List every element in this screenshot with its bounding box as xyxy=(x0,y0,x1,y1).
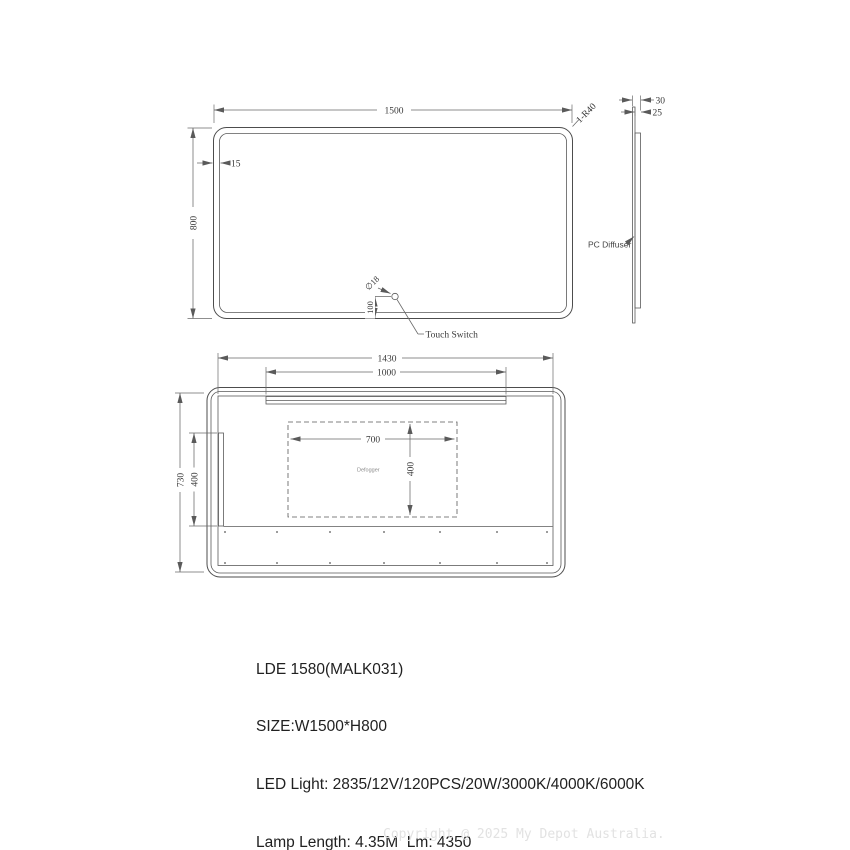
pc-diffuser-label: PC Diffuser xyxy=(588,240,631,250)
dim-glass-depth-label: 25 xyxy=(653,109,663,119)
fixing-dots xyxy=(224,531,548,564)
dim-depth: 30 xyxy=(619,97,665,107)
dim-back-height-label: 730 xyxy=(177,473,187,488)
dim-led-strip: 1000 xyxy=(266,367,506,395)
front-view: 1500 800 15 1-R40 xyxy=(187,102,599,341)
touch-switch-callout: Touch Switch ∅18 100 xyxy=(363,274,478,341)
dot xyxy=(496,531,498,533)
heating-film-label: Defogger xyxy=(357,468,380,474)
dim-side-strip: 400 xyxy=(189,433,218,526)
dot xyxy=(329,562,331,564)
dim-film-width-label: 700 xyxy=(366,436,381,446)
dim-film-height-label: 400 xyxy=(407,462,417,477)
dot xyxy=(496,562,498,564)
dim-corner-radius: 1-R40 xyxy=(573,102,599,127)
back-panel xyxy=(218,396,553,566)
dot xyxy=(329,531,331,533)
dot xyxy=(224,531,226,533)
dim-front-height: 800 xyxy=(187,128,212,319)
touch-switch-label: Touch Switch xyxy=(426,331,479,341)
spec-led: LED Light: 2835/12V/120PCS/20W/3000K/400… xyxy=(256,775,645,794)
dim-side-strip-label: 400 xyxy=(191,472,201,487)
copyright-watermark: Copyright @ 2025 My Depot Australia. Thi… xyxy=(383,797,837,850)
dim-frame-thickness: 15 xyxy=(197,160,241,170)
touch-switch-mark xyxy=(392,293,398,299)
dim-front-width: 1500 xyxy=(214,104,572,123)
dot xyxy=(546,531,548,533)
dim-front-height-label: 800 xyxy=(190,216,200,231)
back-outer-frame xyxy=(207,388,565,578)
leader-line xyxy=(378,288,391,294)
dim-frame-thickness-label: 15 xyxy=(231,160,241,170)
dim-film-width: 700 xyxy=(291,434,455,446)
back-mid-frame xyxy=(211,392,561,574)
dim-depth-label: 30 xyxy=(656,97,666,107)
drawing-page: 1500 800 15 1-R40 xyxy=(0,0,850,850)
dim-glass-depth: 25 xyxy=(621,109,662,119)
mirror-outer-frame xyxy=(214,128,573,319)
switch-diameter-label: ∅18 xyxy=(363,274,381,292)
dot xyxy=(276,562,278,564)
spec-size: SIZE:W1500*H800 xyxy=(256,717,645,736)
switch-offset-label: 100 xyxy=(365,301,375,314)
leader-line xyxy=(397,300,418,335)
dim-led-strip-label: 1000 xyxy=(377,369,396,379)
dot xyxy=(276,531,278,533)
dot xyxy=(439,531,441,533)
dot xyxy=(383,562,385,564)
dot xyxy=(439,562,441,564)
watermark-line1: Copyright @ 2025 My Depot Australia. xyxy=(383,827,837,850)
pc-diffuser-callout: PC Diffuser xyxy=(588,237,634,250)
dim-corner-radius-label: 1-R40 xyxy=(575,102,599,126)
side-led-strip xyxy=(219,433,224,526)
dot xyxy=(383,531,385,533)
back-view: Defogger 1430 xyxy=(175,353,566,578)
dim-front-width-label: 1500 xyxy=(385,107,404,117)
dot xyxy=(224,562,226,564)
spec-model: LDE 1580(MALK031) xyxy=(256,660,645,679)
pc-diffuser-profile xyxy=(635,133,641,308)
dim-film-height: 400 xyxy=(405,424,417,515)
side-view: 30 25 PC Diffuser xyxy=(588,96,665,324)
dim-back-width-label: 1430 xyxy=(378,355,397,365)
dot xyxy=(546,562,548,564)
mirror-inner-frame xyxy=(220,134,567,313)
